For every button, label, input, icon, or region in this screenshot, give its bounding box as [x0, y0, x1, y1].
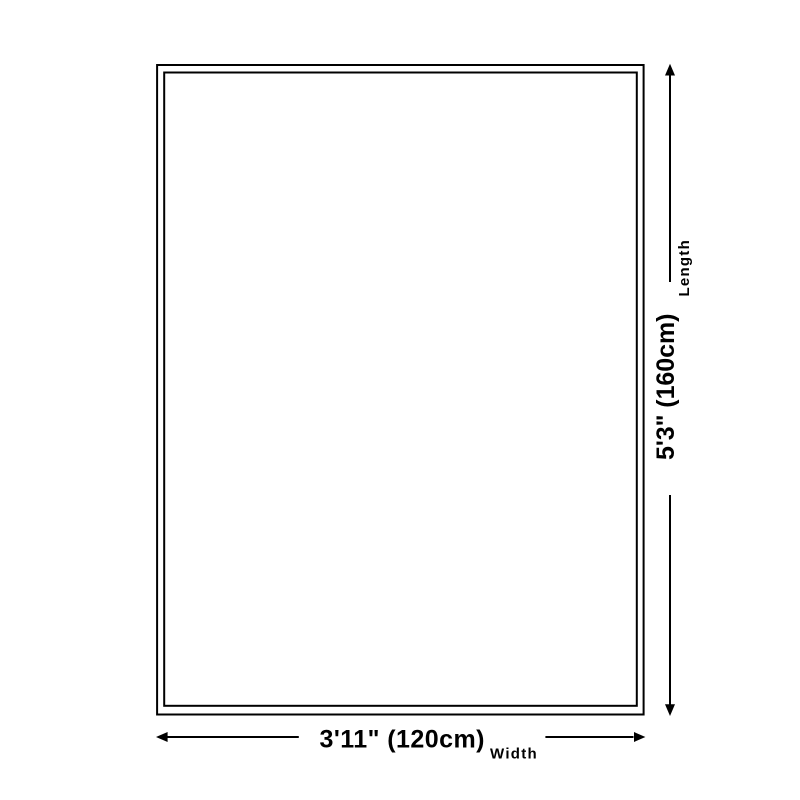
svg-text:Length: Length: [676, 239, 693, 297]
svg-text:3'11" (120cm): 3'11" (120cm): [320, 726, 485, 754]
svg-text:5'3" (160cm): 5'3" (160cm): [652, 314, 680, 460]
svg-text:Width: Width: [490, 746, 538, 763]
